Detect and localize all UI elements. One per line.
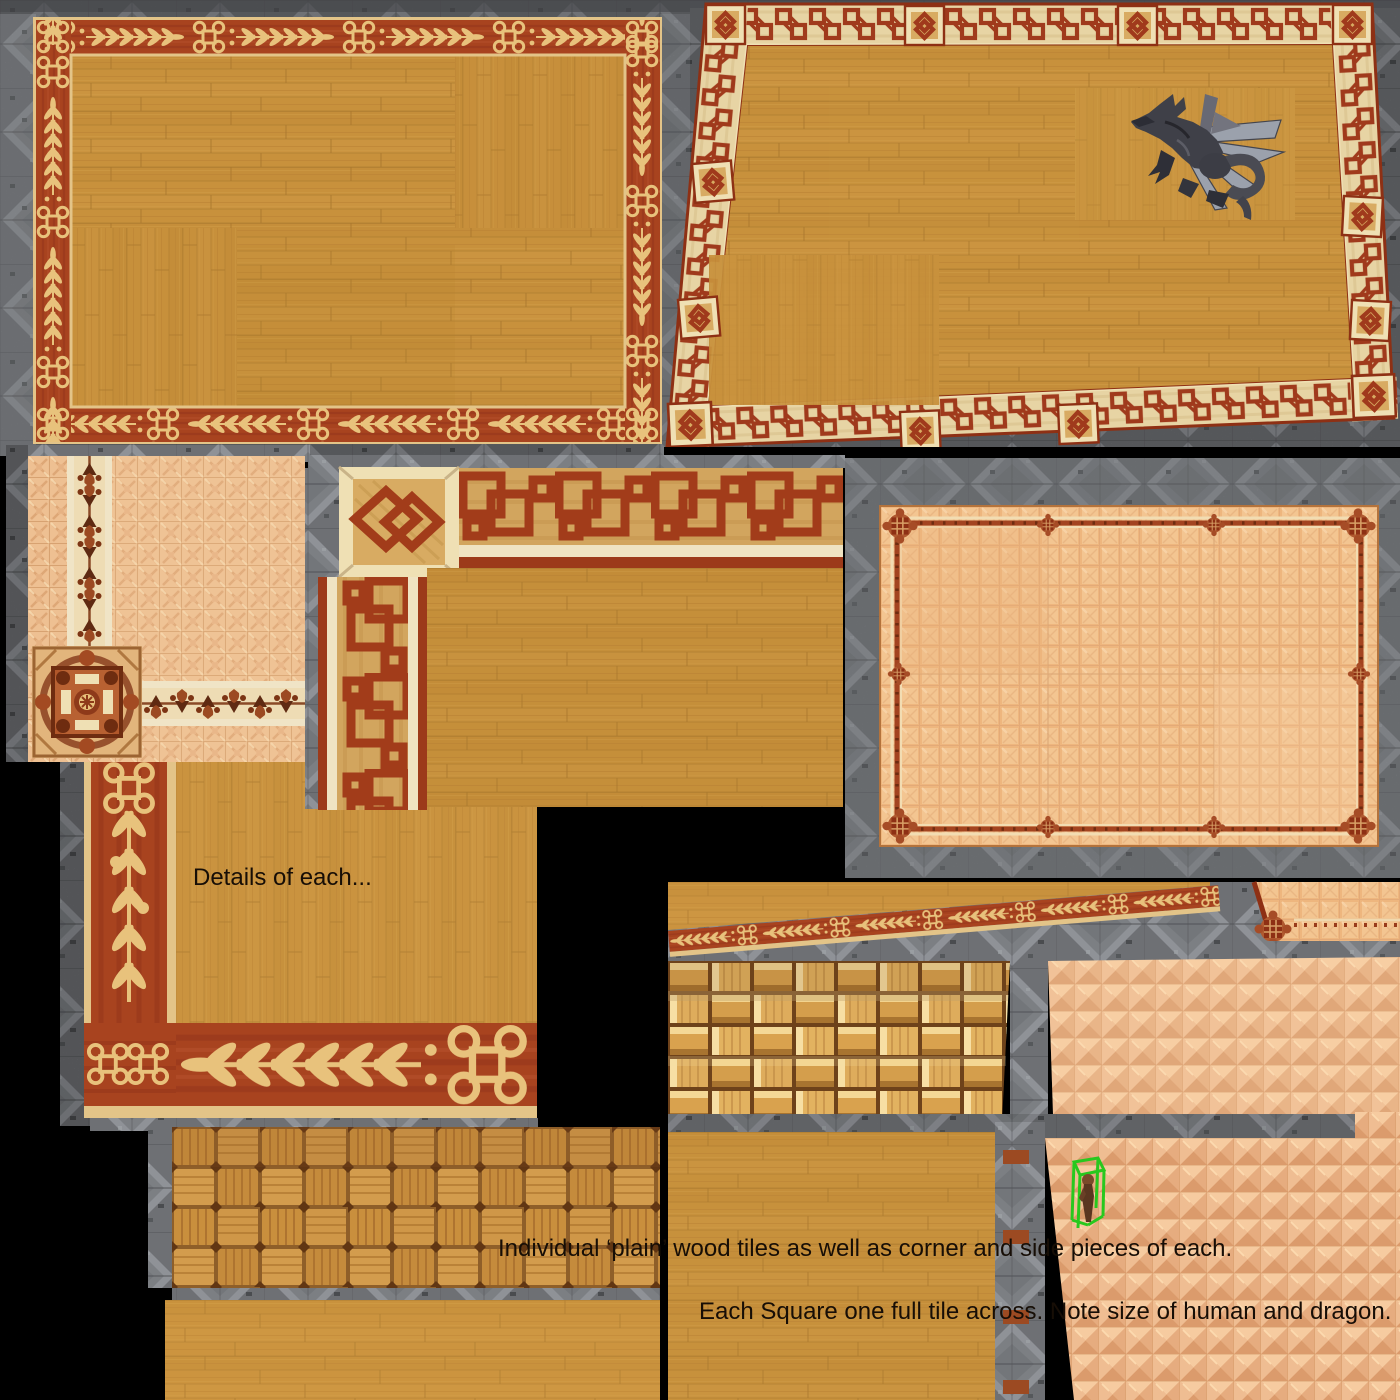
svg-text:Details of each...: Details of each... <box>193 864 372 891</box>
svg-text:Individual ‘plain’ wood tiles: Individual ‘plain’ wood tiles as well as… <box>498 1235 1232 1262</box>
svg-text:Each Square one full tile acro: Each Square one full tile across. Note s… <box>699 1298 1391 1325</box>
